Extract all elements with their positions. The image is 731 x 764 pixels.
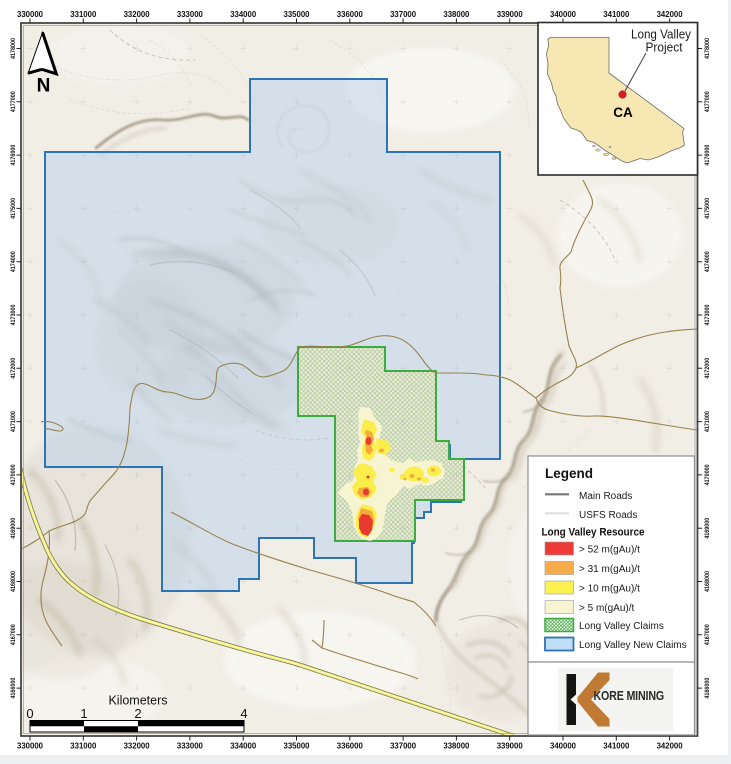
svg-text:331000: 331000	[70, 9, 96, 19]
svg-text:342000: 342000	[657, 741, 683, 751]
svg-text:Project: Project	[646, 40, 683, 55]
svg-text:332000: 332000	[124, 9, 150, 19]
svg-text:333000: 333000	[177, 9, 203, 19]
svg-text:4: 4	[240, 706, 247, 721]
svg-text:4171000: 4171000	[10, 411, 17, 432]
svg-text:339000: 339000	[497, 9, 523, 19]
svg-text:340000: 340000	[550, 9, 576, 19]
svg-text:4170000: 4170000	[704, 464, 711, 485]
svg-text:4166000: 4166000	[704, 677, 711, 698]
svg-text:336000: 336000	[337, 9, 363, 19]
svg-text:4172000: 4172000	[10, 357, 17, 378]
svg-text:338000: 338000	[443, 741, 469, 751]
svg-text:2: 2	[134, 706, 141, 721]
svg-text:Long Valley Resource: Long Valley Resource	[542, 527, 645, 539]
svg-text:4173000: 4173000	[704, 304, 711, 325]
svg-text:Long Valley Claims: Long Valley Claims	[579, 621, 664, 632]
svg-text:> 5 m(gAu)/t: > 5 m(gAu)/t	[579, 603, 635, 614]
svg-text:4174000: 4174000	[10, 251, 17, 272]
svg-text:Main Roads: Main Roads	[579, 491, 632, 502]
svg-text:335000: 335000	[284, 9, 310, 19]
svg-text:337000: 337000	[390, 741, 416, 751]
svg-text:336000: 336000	[337, 741, 363, 751]
svg-text:4167000: 4167000	[704, 624, 711, 645]
svg-text:4169000: 4169000	[10, 517, 17, 538]
svg-text:4176000: 4176000	[10, 144, 17, 165]
svg-text:> 10 m(gAu)/t: > 10 m(gAu)/t	[579, 584, 640, 595]
svg-text:340000: 340000	[550, 741, 576, 751]
svg-text:4175000: 4175000	[704, 197, 711, 218]
svg-text:> 31 m(gAu)/t: > 31 m(gAu)/t	[579, 564, 640, 575]
svg-text:4177000: 4177000	[704, 91, 711, 112]
svg-text:341000: 341000	[603, 9, 629, 19]
svg-text:N: N	[37, 76, 51, 97]
svg-text:4168000: 4168000	[10, 571, 17, 592]
svg-text:4169000: 4169000	[704, 517, 711, 538]
svg-text:> 52 m(gAu)/t: > 52 m(gAu)/t	[579, 545, 640, 556]
svg-text:KORE MINING: KORE MINING	[594, 688, 665, 703]
svg-text:Legend: Legend	[545, 466, 593, 481]
svg-text:4171000: 4171000	[704, 411, 711, 432]
svg-text:4168000: 4168000	[704, 571, 711, 592]
svg-text:332000: 332000	[124, 741, 150, 751]
svg-text:4178000: 4178000	[704, 38, 711, 59]
svg-text:4178000: 4178000	[10, 38, 17, 59]
svg-text:341000: 341000	[603, 741, 629, 751]
svg-text:342000: 342000	[657, 9, 683, 19]
svg-text:4166000: 4166000	[10, 677, 17, 698]
svg-text:CA: CA	[613, 105, 633, 120]
svg-text:335000: 335000	[284, 741, 310, 751]
svg-text:4172000: 4172000	[704, 357, 711, 378]
svg-text:337000: 337000	[390, 9, 416, 19]
svg-text:4175000: 4175000	[10, 197, 17, 218]
svg-text:339000: 339000	[497, 741, 523, 751]
svg-text:4173000: 4173000	[10, 304, 17, 325]
svg-text:Long Valley New Claims: Long Valley New Claims	[579, 640, 687, 651]
svg-text:331000: 331000	[70, 741, 96, 751]
svg-text:338000: 338000	[443, 9, 469, 19]
svg-text:4170000: 4170000	[10, 464, 17, 485]
svg-text:334000: 334000	[230, 9, 256, 19]
svg-text:333000: 333000	[177, 741, 203, 751]
svg-text:0: 0	[26, 706, 33, 721]
svg-text:4177000: 4177000	[10, 91, 17, 112]
svg-text:330000: 330000	[17, 741, 43, 751]
svg-text:334000: 334000	[230, 741, 256, 751]
svg-text:330000: 330000	[17, 9, 43, 19]
svg-text:4167000: 4167000	[10, 624, 17, 645]
svg-text:4176000: 4176000	[704, 144, 711, 165]
svg-text:USFS Roads: USFS Roads	[579, 510, 637, 521]
svg-text:4174000: 4174000	[704, 251, 711, 272]
svg-text:1: 1	[80, 706, 87, 721]
